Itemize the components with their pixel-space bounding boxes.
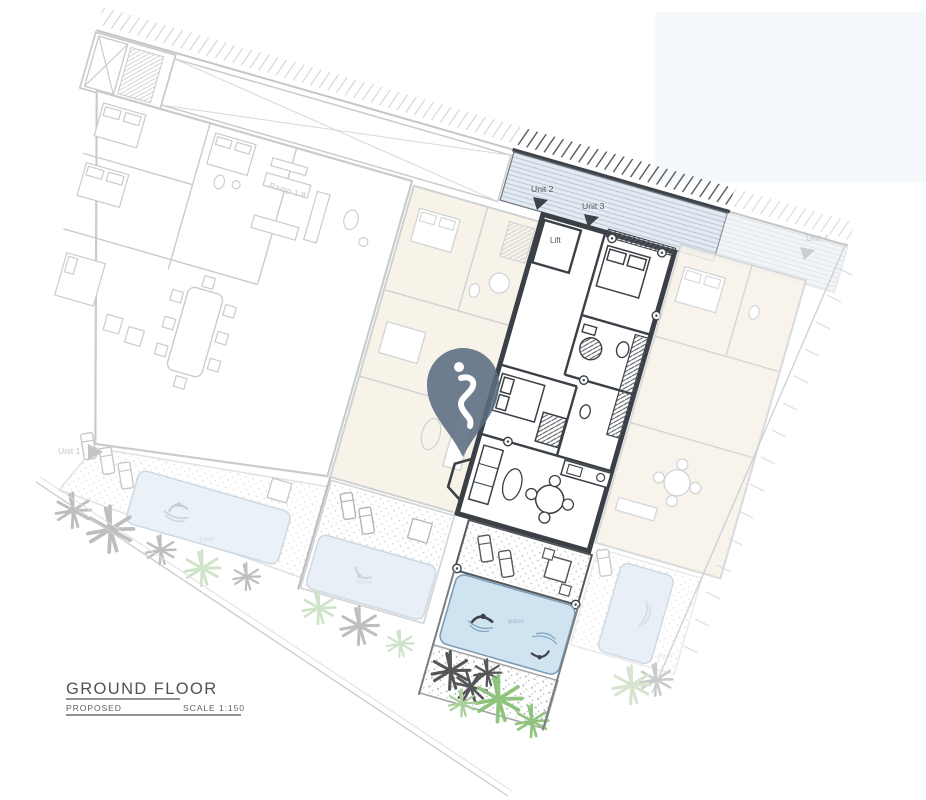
pool-1-label: pool (199, 536, 214, 543)
unit-1-label: Unit 1 (58, 446, 81, 456)
unit-4-label: Unit 4 (806, 233, 829, 243)
unit-2-label: Unit 2 (531, 184, 554, 194)
pool-4-label: pool (657, 653, 672, 660)
pool-3-label: pool (508, 618, 523, 625)
bathroom-1 (575, 324, 632, 370)
unit-3-label: Unit 3 (582, 201, 605, 211)
corner-tint-overlay (655, 12, 926, 182)
drawing-title: GROUND FLOOR (66, 680, 218, 698)
title-block: GROUND FLOOR PROPOSED SCALE 1:150 (66, 680, 245, 715)
pool-2-label: pool (357, 579, 372, 586)
floor-plan-drawing: Unit 1 Unit 2 Unit 3 Unit 4 Lift Ramp 1:… (0, 0, 926, 800)
lift-label: Lift (550, 236, 561, 245)
bedroom-1 (596, 246, 650, 299)
drawing-status: PROPOSED (66, 703, 122, 713)
floor-plan-page: Unit 1 Unit 2 Unit 3 Unit 4 Lift Ramp 1:… (0, 0, 926, 800)
drawing-scale: SCALE 1:150 (183, 703, 245, 713)
bedroom-2 (487, 373, 574, 447)
